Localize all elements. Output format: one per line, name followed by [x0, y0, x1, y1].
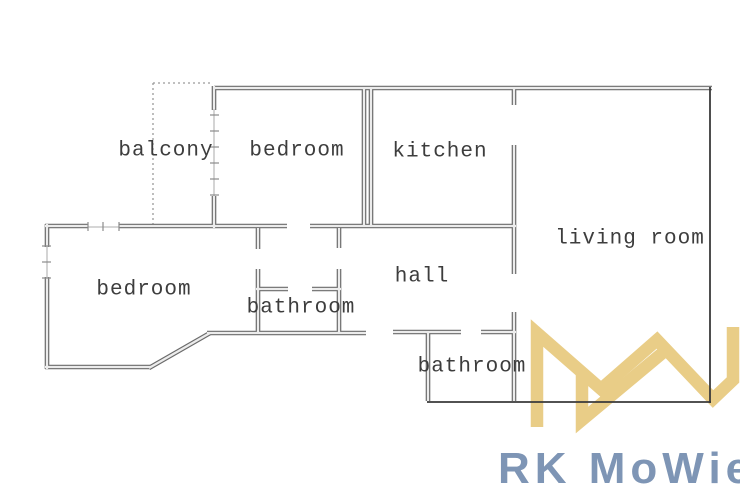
room-label-kitchen: kitchen [392, 141, 487, 164]
window-symbols [42, 109, 219, 278]
floorplan-page: balcony bedroom kitchen living room bedr… [0, 0, 740, 493]
room-label-hall: hall [395, 266, 449, 289]
room-label-bathroom-bottom: bathroom [418, 356, 527, 379]
brand-watermark-text: RK MoWie [498, 444, 740, 493]
room-label-living-room: living room [555, 228, 705, 251]
room-label-balcony: balcony [118, 140, 213, 163]
room-label-bedroom-left: bedroom [96, 279, 191, 302]
room-label-bathroom-center: bathroom [247, 297, 356, 320]
logo-mw-mark-icon [537, 327, 733, 427]
room-label-bedroom-top: bedroom [249, 140, 344, 163]
